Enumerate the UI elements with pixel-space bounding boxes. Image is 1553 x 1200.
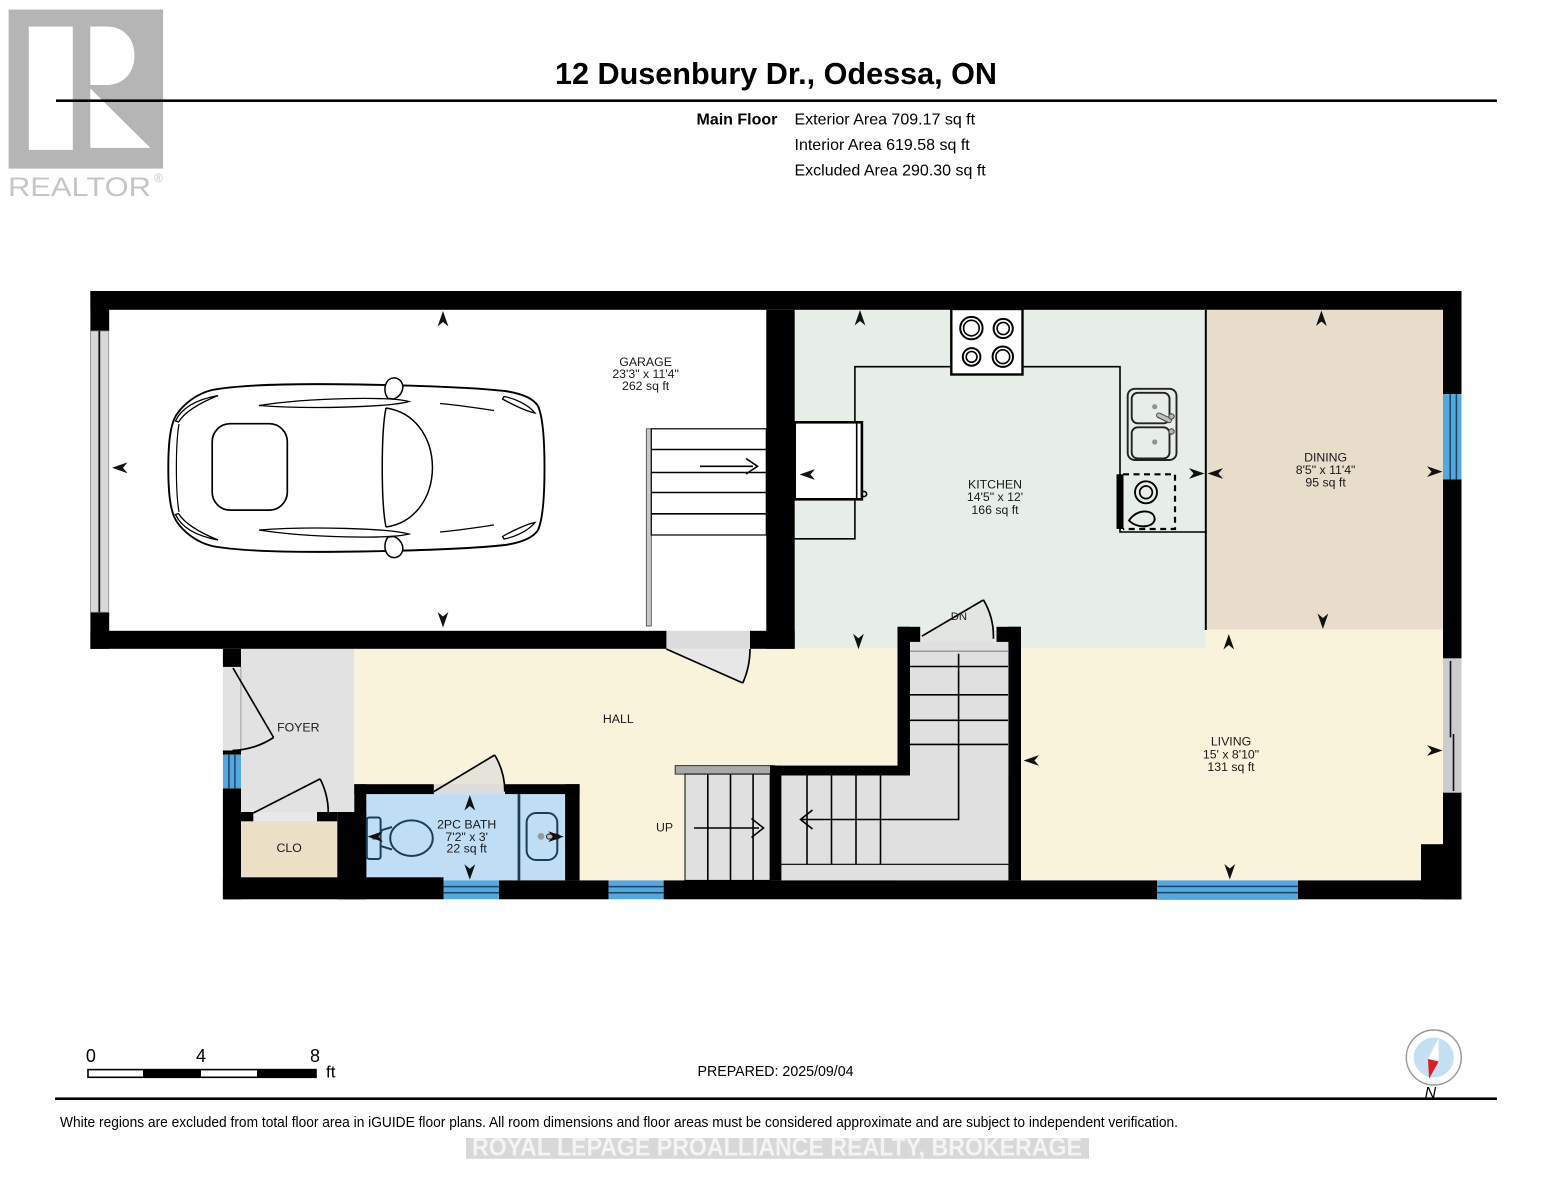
svg-text:REALTOR: REALTOR: [8, 172, 151, 202]
svg-text:FOYER: FOYER: [277, 721, 319, 735]
svg-text:ft: ft: [326, 1063, 336, 1082]
svg-text:262 sq ft: 262 sq ft: [622, 379, 670, 393]
svg-text:0: 0: [86, 1046, 96, 1066]
svg-text:White regions are excluded fro: White regions are excluded from total fl…: [60, 1114, 1178, 1131]
svg-text:12 Dusenbury Dr., Odessa, ON: 12 Dusenbury Dr., Odessa, ON: [555, 57, 997, 91]
svg-text:ROYAL LEPAGE PROALLIANCE REALT: ROYAL LEPAGE PROALLIANCE REALTY, BROKERA…: [472, 1133, 1082, 1161]
svg-text:Main Floor: Main Floor: [697, 112, 778, 129]
svg-text:DN: DN: [951, 611, 967, 623]
svg-text:22 sq ft: 22 sq ft: [447, 842, 488, 856]
svg-text:CLO: CLO: [277, 841, 302, 855]
svg-text:4: 4: [196, 1046, 206, 1066]
svg-text:8: 8: [310, 1046, 320, 1066]
svg-text:Exterior Area 709.17 sq ft: Exterior Area 709.17 sq ft: [795, 112, 976, 129]
svg-text:UP: UP: [656, 820, 673, 834]
svg-text:166 sq ft: 166 sq ft: [971, 503, 1019, 517]
svg-text:95 sq ft: 95 sq ft: [1305, 476, 1346, 490]
svg-text:Excluded Area 290.30 sq ft: Excluded Area 290.30 sq ft: [795, 163, 987, 180]
svg-text:KITCHEN: KITCHEN: [968, 477, 1022, 491]
svg-text:PREPARED: 2025/09/04: PREPARED: 2025/09/04: [698, 1063, 854, 1080]
svg-text:®: ®: [154, 171, 163, 185]
svg-text:HALL: HALL: [603, 712, 634, 726]
svg-text:Interior Area 619.58 sq ft: Interior Area 619.58 sq ft: [795, 137, 971, 154]
svg-text:131 sq ft: 131 sq ft: [1207, 760, 1255, 774]
